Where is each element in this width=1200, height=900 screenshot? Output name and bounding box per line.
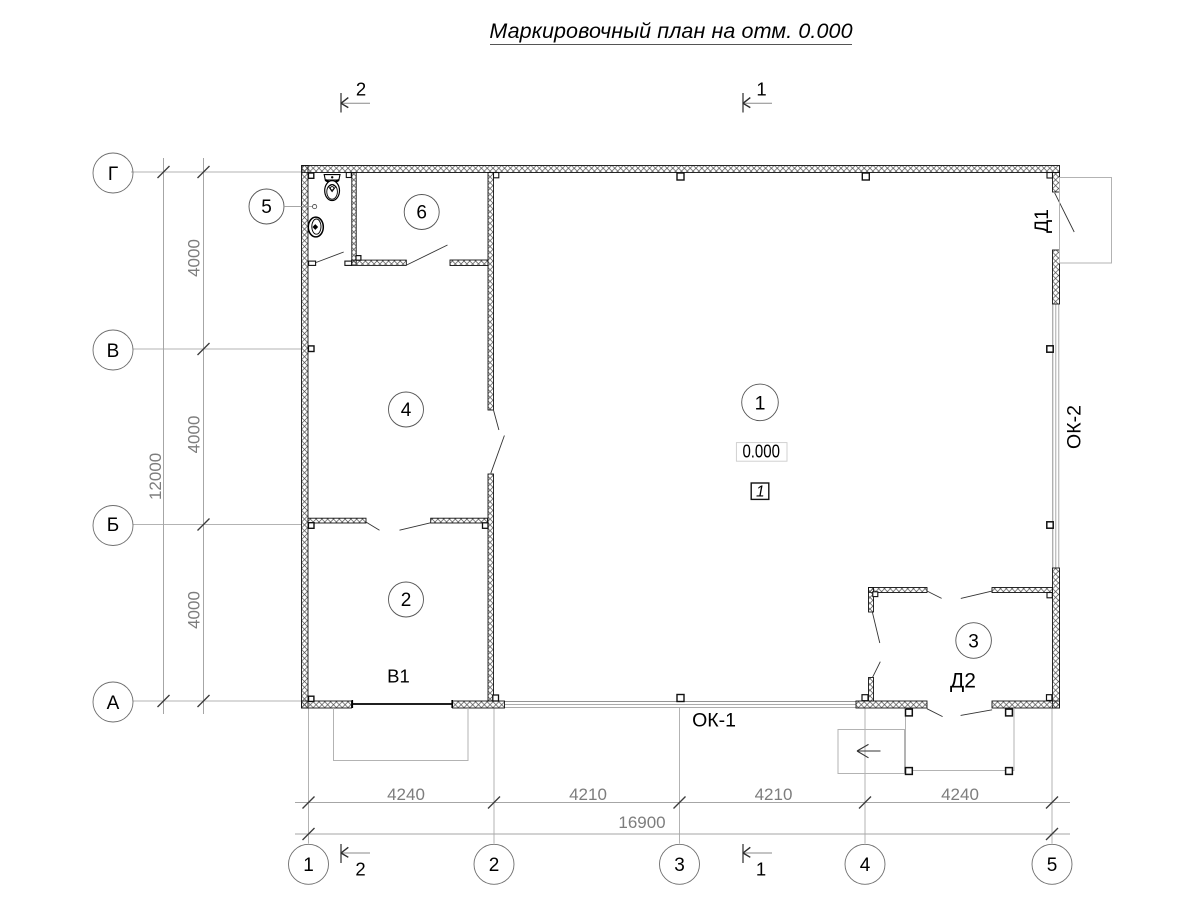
svg-text:Б: Б	[107, 515, 119, 536]
svg-text:В1: В1	[387, 666, 410, 687]
svg-text:4000: 4000	[184, 591, 203, 629]
svg-text:1: 1	[303, 855, 314, 876]
svg-text:Д2: Д2	[950, 669, 976, 692]
svg-text:ОК-2: ОК-2	[1064, 405, 1086, 449]
svg-text:Маркировочный план на отм. 0.0: Маркировочный план на отм. 0.000	[489, 19, 852, 43]
svg-text:4210: 4210	[569, 785, 607, 804]
svg-text:4: 4	[401, 400, 412, 421]
svg-text:ОК-1: ОК-1	[692, 710, 736, 732]
svg-text:5: 5	[261, 197, 272, 218]
svg-text:2: 2	[489, 855, 500, 876]
svg-text:1: 1	[756, 483, 765, 500]
svg-text:0.000: 0.000	[742, 442, 780, 462]
svg-text:5: 5	[1047, 855, 1058, 876]
svg-text:1: 1	[756, 859, 766, 880]
svg-text:4000: 4000	[184, 416, 203, 454]
svg-text:4240: 4240	[941, 785, 979, 804]
svg-text:16900: 16900	[618, 813, 665, 832]
svg-text:3: 3	[968, 631, 979, 652]
svg-text:1: 1	[756, 79, 766, 100]
svg-text:6: 6	[416, 203, 427, 224]
svg-text:А: А	[107, 693, 120, 714]
svg-text:12000: 12000	[146, 453, 165, 500]
svg-text:2: 2	[356, 79, 366, 100]
svg-text:Г: Г	[108, 164, 118, 185]
svg-text:4000: 4000	[184, 239, 203, 277]
svg-text:4240: 4240	[387, 785, 425, 804]
svg-text:3: 3	[674, 855, 685, 876]
svg-text:4210: 4210	[755, 785, 793, 804]
svg-text:4: 4	[860, 855, 871, 876]
svg-text:2: 2	[401, 590, 412, 611]
svg-text:Д1: Д1	[1031, 209, 1053, 233]
svg-text:В: В	[107, 341, 120, 362]
svg-text:1: 1	[755, 392, 766, 414]
svg-text:2: 2	[355, 859, 365, 880]
